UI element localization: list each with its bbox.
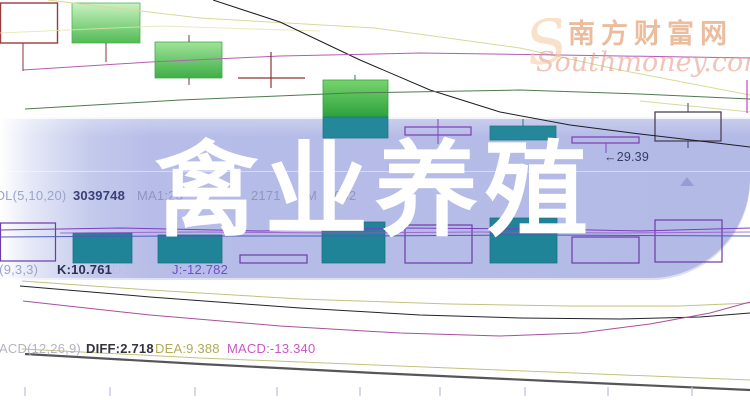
vol-hollow-1 — [1, 223, 56, 261]
kdj-k-curve — [20, 286, 750, 319]
kdj-d-value: D:22.532 — [112, 262, 166, 277]
macd-dea-value: DEA:9.388 — [155, 341, 220, 356]
vol-hollow-2 — [240, 255, 307, 263]
vol-indicator-label: VOL(5,10,20) — [0, 188, 66, 203]
price-value: 29.39 — [617, 150, 649, 164]
stock-chart-screenshot: VOL(5,10,20) 3039748 MA1:23 2171 M 652 K… — [0, 0, 750, 400]
macd-diff-value: DIFF:2.718 — [86, 341, 154, 356]
vol-hollow-5 — [655, 220, 722, 262]
kdj-j-value: J:-12.782 — [172, 262, 228, 277]
macd-dif-curve — [25, 354, 750, 390]
macd-macd-value: MACD:-13.340 — [227, 341, 315, 356]
marker-triangle-icon — [680, 177, 694, 186]
price-annotation: ←29.39 — [604, 150, 649, 164]
candle-green-1 — [72, 3, 140, 43]
candle-green-3 — [323, 80, 388, 117]
macd-indicator-label: MACD(12,26,9) — [0, 341, 81, 356]
overlay-title: 禽业养殖 — [155, 139, 595, 242]
ma-pale-right — [640, 101, 750, 112]
watermark-s-logo-icon: S — [521, 5, 571, 80]
kdj-d-curve — [22, 281, 750, 306]
kdj-k-value: K:10.761 — [57, 262, 112, 277]
kdj-indicator-label: KDJ(9,3,3) — [0, 262, 38, 277]
vol-value: 3039748 — [73, 188, 125, 203]
watermark-brand: 南方财富网 — [568, 12, 750, 51]
ma-pale-short — [0, 26, 320, 33]
candle-hollow-left — [1, 3, 58, 43]
left-arrow-icon: ← — [604, 150, 617, 164]
vol-teal-1 — [73, 233, 132, 263]
watermark: S 南方财富网 Southmoney.com — [528, 12, 750, 78]
